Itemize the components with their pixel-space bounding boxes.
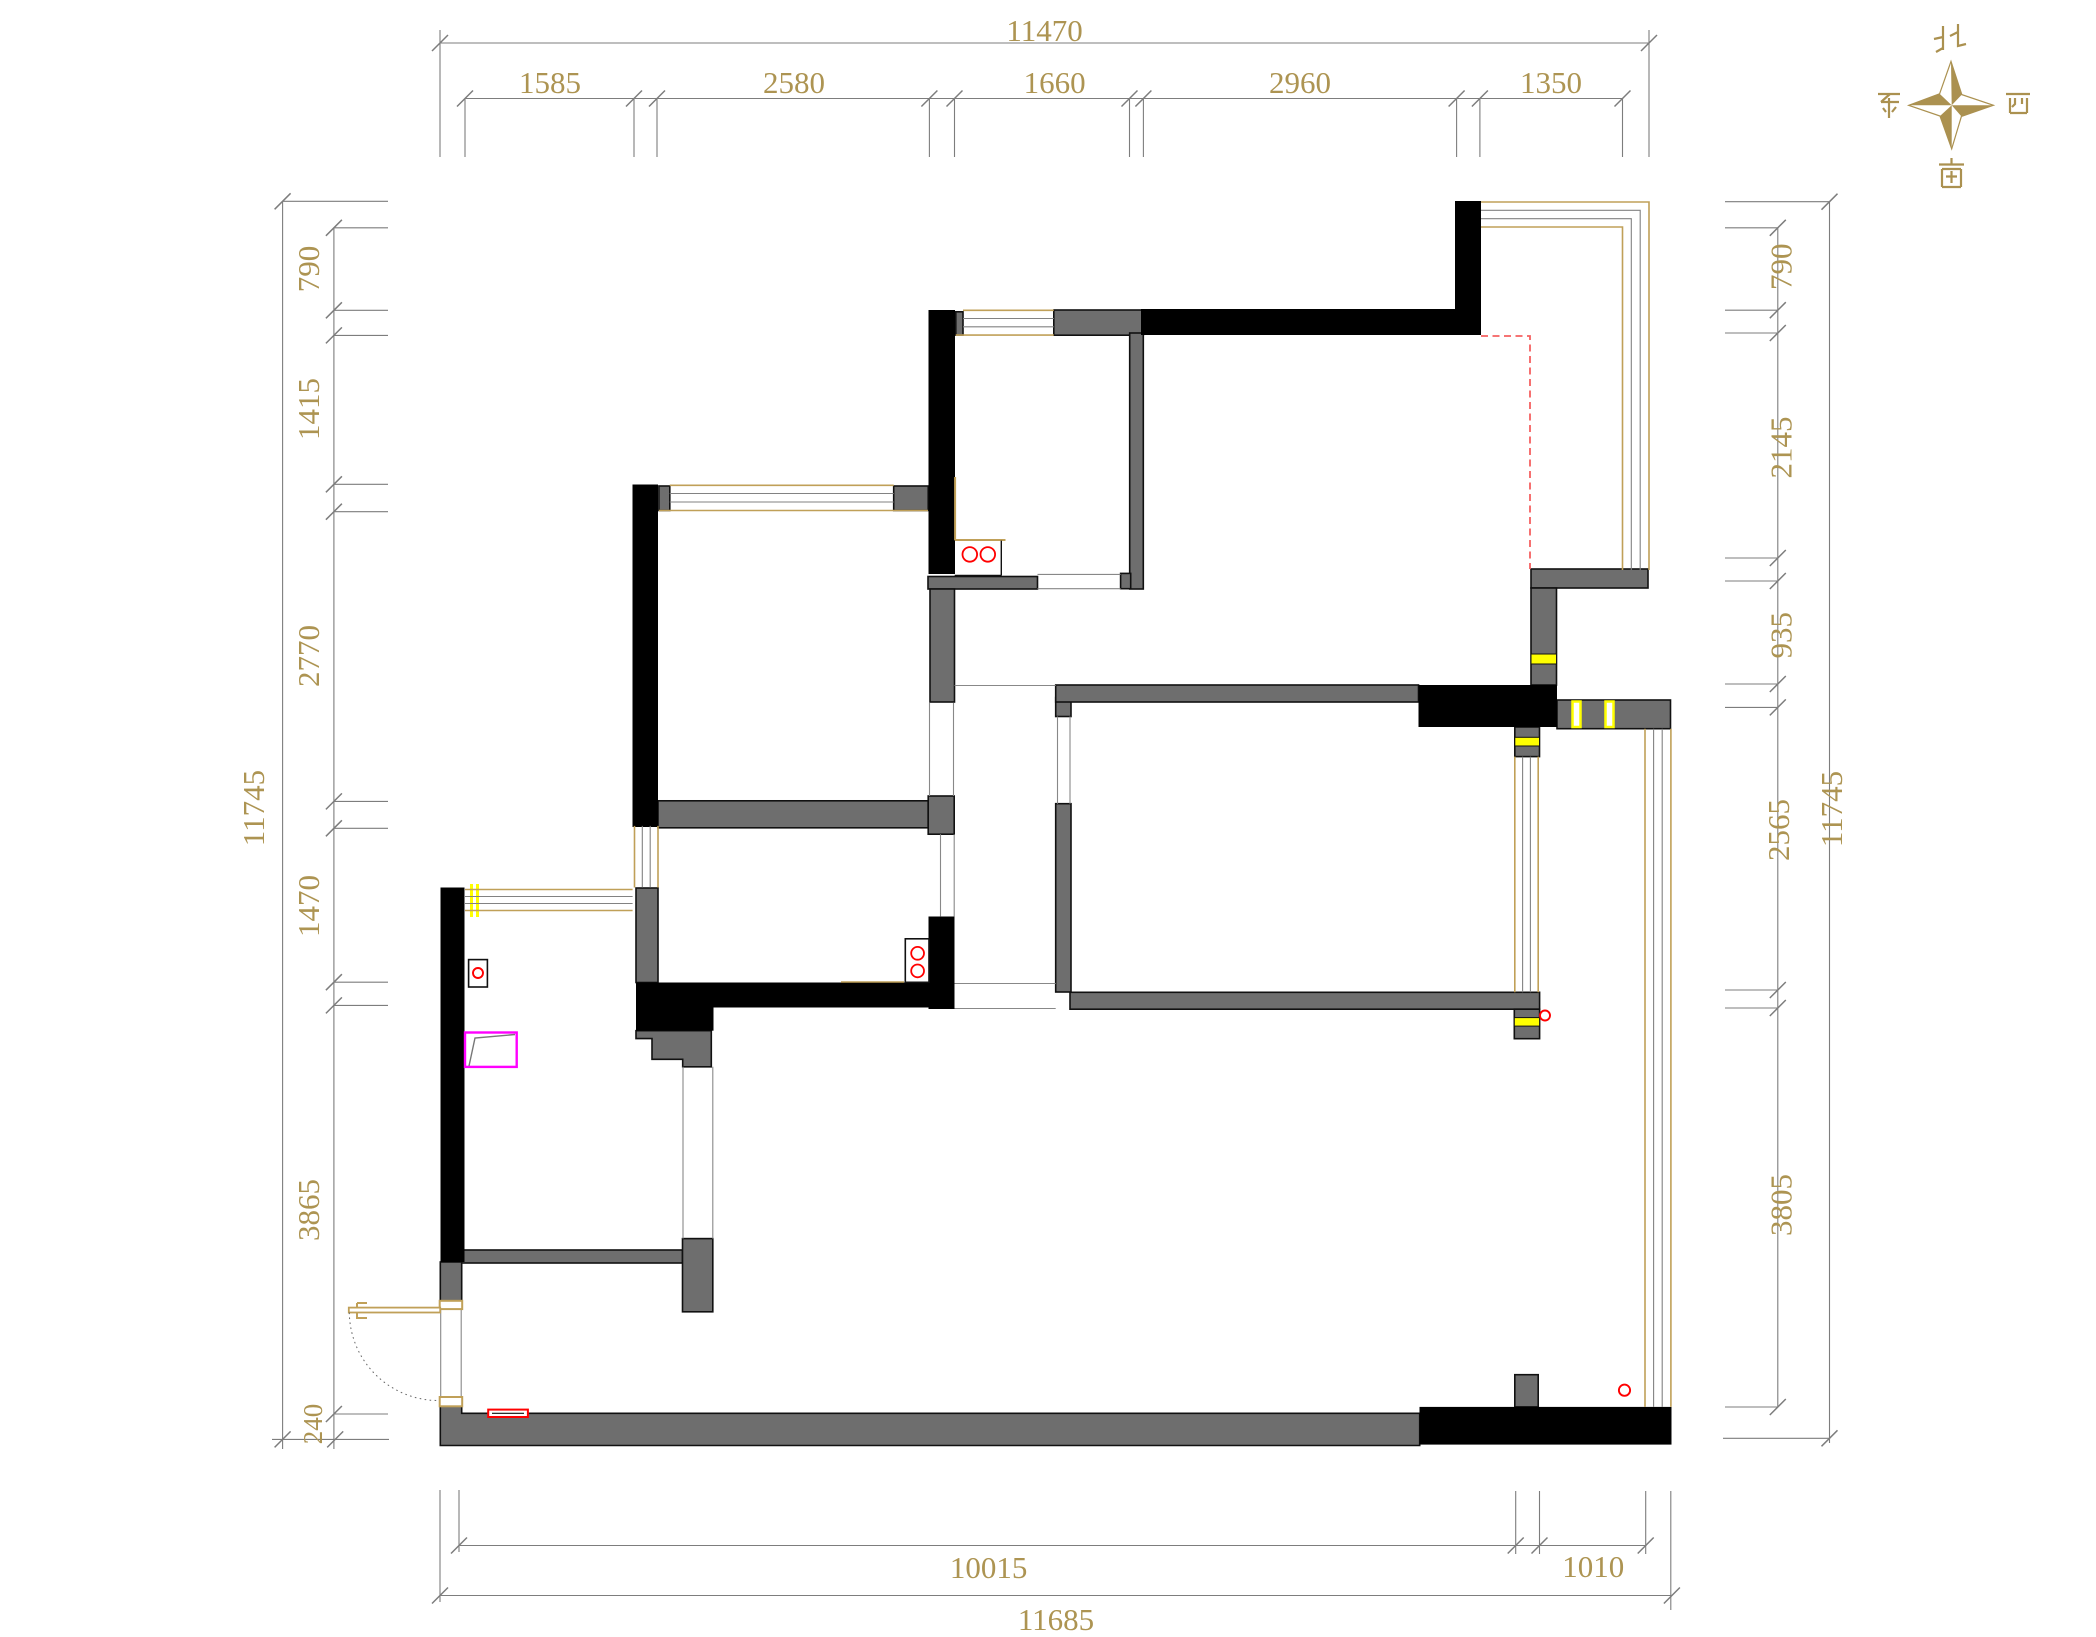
svg-text:240: 240 xyxy=(298,1404,328,1445)
svg-text:10015: 10015 xyxy=(950,1550,1028,1585)
svg-text:11685: 11685 xyxy=(1018,1602,1094,1637)
svg-text:1415: 1415 xyxy=(291,378,326,440)
svg-text:1010: 1010 xyxy=(1562,1549,1624,1584)
svg-text:790: 790 xyxy=(291,246,326,293)
svg-text:2580: 2580 xyxy=(763,65,825,100)
svg-text:11470: 11470 xyxy=(1006,13,1082,48)
svg-text:2770: 2770 xyxy=(291,625,326,687)
svg-text:935: 935 xyxy=(1764,612,1799,659)
svg-text:1470: 1470 xyxy=(291,875,326,937)
svg-text:11745: 11745 xyxy=(236,770,271,846)
svg-text:2145: 2145 xyxy=(1764,417,1799,479)
svg-text:1660: 1660 xyxy=(1024,65,1086,100)
svg-text:2960: 2960 xyxy=(1269,65,1331,100)
svg-text:1350: 1350 xyxy=(1520,65,1582,100)
svg-text:3865: 3865 xyxy=(291,1179,326,1241)
svg-text:2565: 2565 xyxy=(1761,799,1796,861)
svg-text:11745: 11745 xyxy=(1814,771,1849,847)
svg-text:790: 790 xyxy=(1764,243,1799,290)
svg-text:1585: 1585 xyxy=(519,65,581,100)
svg-text:3805: 3805 xyxy=(1764,1174,1799,1236)
